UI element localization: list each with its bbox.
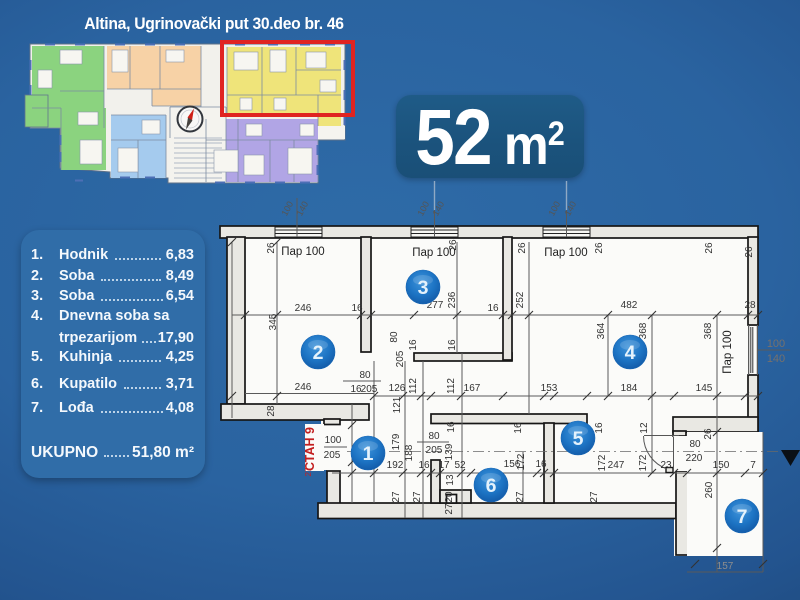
svg-text:126: 126 [389,383,406,394]
svg-text:16: 16 [351,303,363,314]
svg-text:260: 260 [704,481,715,498]
svg-text:188: 188 [404,444,415,461]
svg-text:1: 1 [363,443,374,465]
svg-text:172: 172 [516,453,527,470]
svg-text:205: 205 [395,350,406,367]
svg-text:100: 100 [279,200,295,218]
svg-text:3: 3 [418,277,429,299]
svg-text:368: 368 [638,322,649,339]
svg-text:157: 157 [717,561,734,572]
svg-text:80: 80 [428,431,440,442]
svg-text:220: 220 [686,453,703,464]
svg-text:27: 27 [412,491,423,503]
svg-text:192: 192 [387,460,404,471]
svg-text:23: 23 [660,460,672,471]
svg-text:172: 172 [638,454,649,471]
svg-text:140: 140 [562,200,578,218]
svg-text:27: 27 [391,491,402,503]
svg-text:7: 7 [750,460,756,471]
svg-text:16: 16 [513,422,524,434]
svg-text:167: 167 [464,383,481,394]
svg-text:26: 26 [704,242,715,254]
svg-text:179: 179 [391,433,402,450]
svg-text:80: 80 [389,331,400,343]
svg-text:364: 364 [596,322,607,339]
svg-text:12: 12 [639,422,650,434]
svg-text:236: 236 [447,291,458,308]
svg-text:Пар 100: Пар 100 [722,330,734,373]
svg-text:100: 100 [415,200,431,218]
svg-text:16: 16 [535,459,547,470]
svg-text:112: 112 [446,378,457,394]
svg-text:345: 345 [268,313,279,330]
svg-text:184: 184 [621,383,638,394]
svg-text:247: 247 [608,460,625,471]
svg-text:52: 52 [454,460,466,471]
svg-text:26: 26 [594,242,605,254]
svg-text:368: 368 [703,322,714,339]
svg-text:252: 252 [515,291,526,308]
svg-text:100: 100 [767,338,785,350]
svg-text:145: 145 [696,383,713,394]
svg-text:13: 13 [445,474,456,486]
svg-text:27: 27 [304,467,313,476]
svg-text:26: 26 [517,242,528,254]
svg-text:17: 17 [438,460,450,471]
svg-text:27: 27 [444,503,455,515]
svg-text:16: 16 [487,303,499,314]
svg-text:Пар 100: Пар 100 [412,247,455,259]
svg-text:16: 16 [446,421,457,433]
svg-text:28: 28 [266,405,277,417]
svg-text:16: 16 [447,339,458,351]
svg-text:СТАН 9: СТАН 9 [303,427,317,471]
svg-text:16: 16 [408,339,419,351]
svg-text:26: 26 [744,246,755,258]
svg-text:140: 140 [430,200,446,218]
svg-text:27: 27 [515,491,526,503]
svg-text:20: 20 [444,491,455,503]
svg-text:26: 26 [703,428,714,440]
svg-text:Пар 100: Пар 100 [281,246,324,258]
svg-text:100: 100 [546,200,562,218]
svg-text:4: 4 [625,342,636,364]
svg-text:153: 153 [541,383,558,394]
svg-text:139: 139 [444,443,455,460]
svg-text:6: 6 [486,475,497,497]
svg-text:16: 16 [418,460,430,471]
svg-text:80: 80 [689,439,701,450]
svg-text:482: 482 [621,300,638,311]
svg-text:100: 100 [325,435,342,446]
svg-text:Пар 100: Пар 100 [544,247,587,259]
svg-text:246: 246 [295,382,312,393]
svg-text:112: 112 [408,378,419,394]
svg-text:26: 26 [266,242,277,254]
svg-text:28: 28 [744,300,756,311]
svg-text:80: 80 [359,370,371,381]
svg-text:121: 121 [392,396,403,413]
svg-text:7: 7 [737,506,748,528]
svg-text:205: 205 [361,384,378,395]
svg-text:205: 205 [426,445,443,456]
svg-text:16: 16 [594,422,605,434]
svg-text:172: 172 [597,454,608,471]
svg-text:150: 150 [713,460,730,471]
svg-text:246: 246 [295,303,312,314]
svg-text:205: 205 [324,450,341,461]
svg-text:5: 5 [573,428,584,450]
svg-text:140: 140 [767,353,785,365]
svg-text:2: 2 [313,342,324,364]
svg-text:27: 27 [589,491,600,503]
